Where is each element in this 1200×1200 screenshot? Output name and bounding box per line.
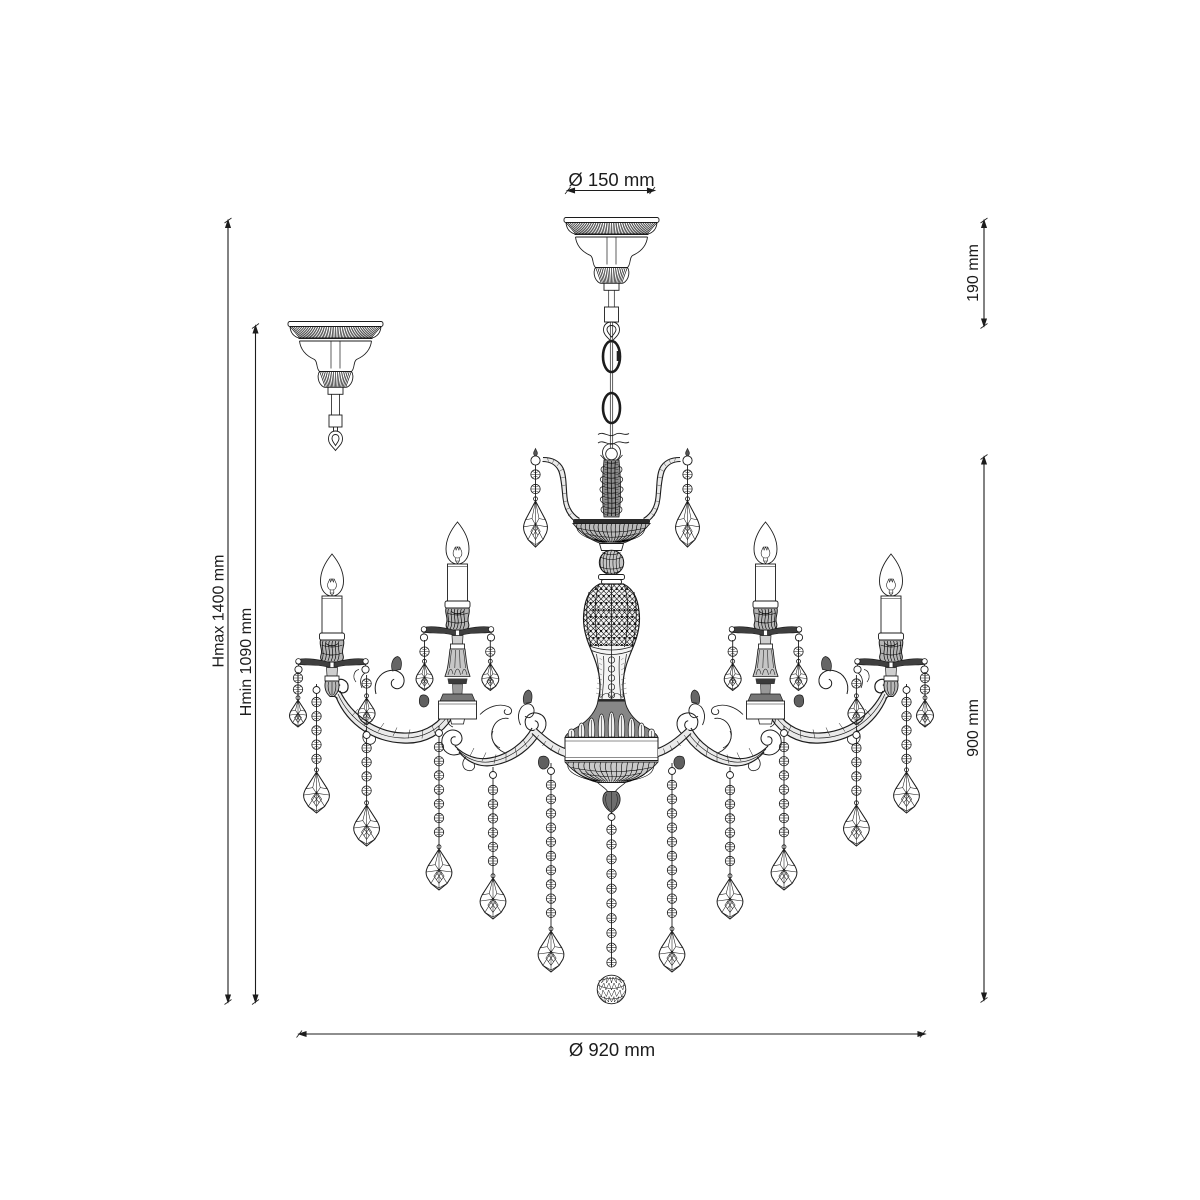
svg-text:190 mm: 190 mm [965,244,982,302]
svg-text:Hmax 1400 mm: Hmax 1400 mm [211,555,228,668]
svg-text:Ø 920 mm: Ø 920 mm [569,1039,655,1060]
svg-text:Ø 150 mm: Ø 150 mm [568,169,654,190]
svg-text:900 mm: 900 mm [965,699,982,757]
svg-text:Hmin 1090 mm: Hmin 1090 mm [238,608,255,716]
